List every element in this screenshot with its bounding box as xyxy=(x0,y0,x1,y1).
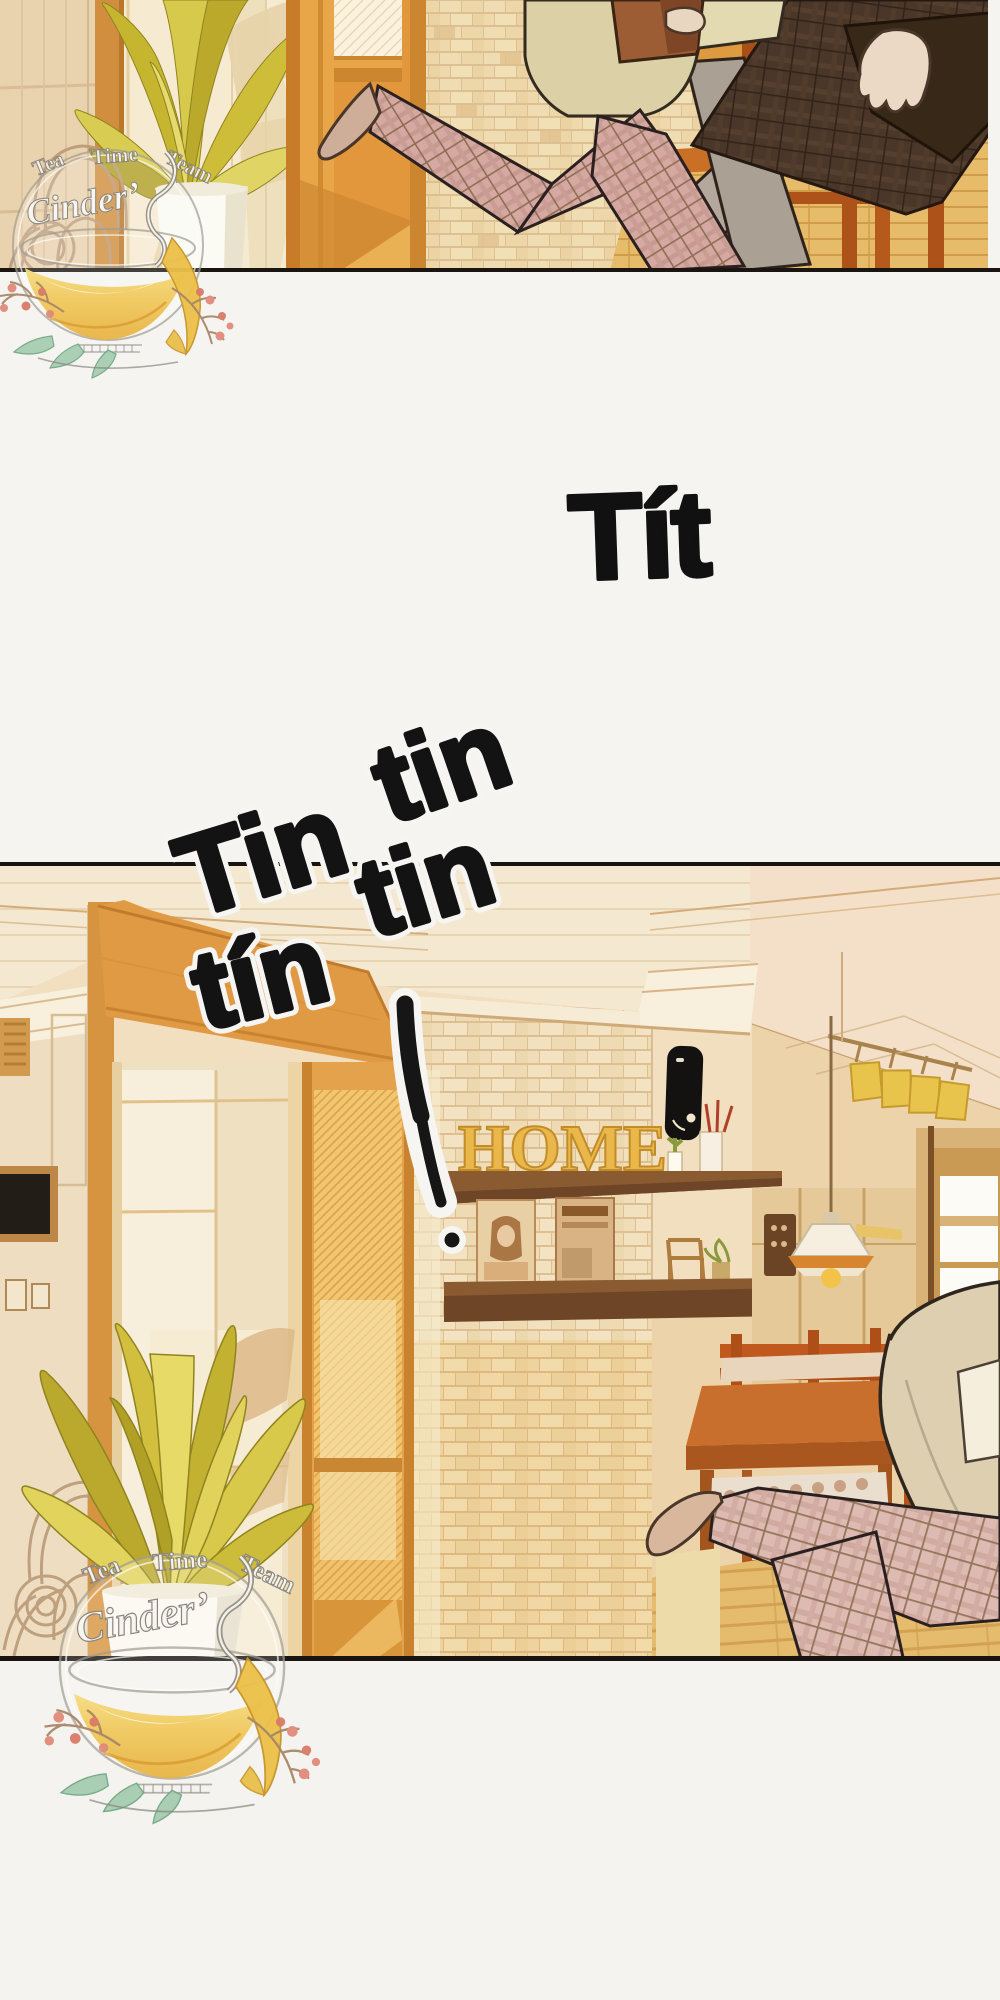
svg-text:Tít: Tít xyxy=(566,465,713,606)
svg-text:Time: Time xyxy=(152,1546,208,1577)
svg-text:Time: Time xyxy=(91,142,139,169)
